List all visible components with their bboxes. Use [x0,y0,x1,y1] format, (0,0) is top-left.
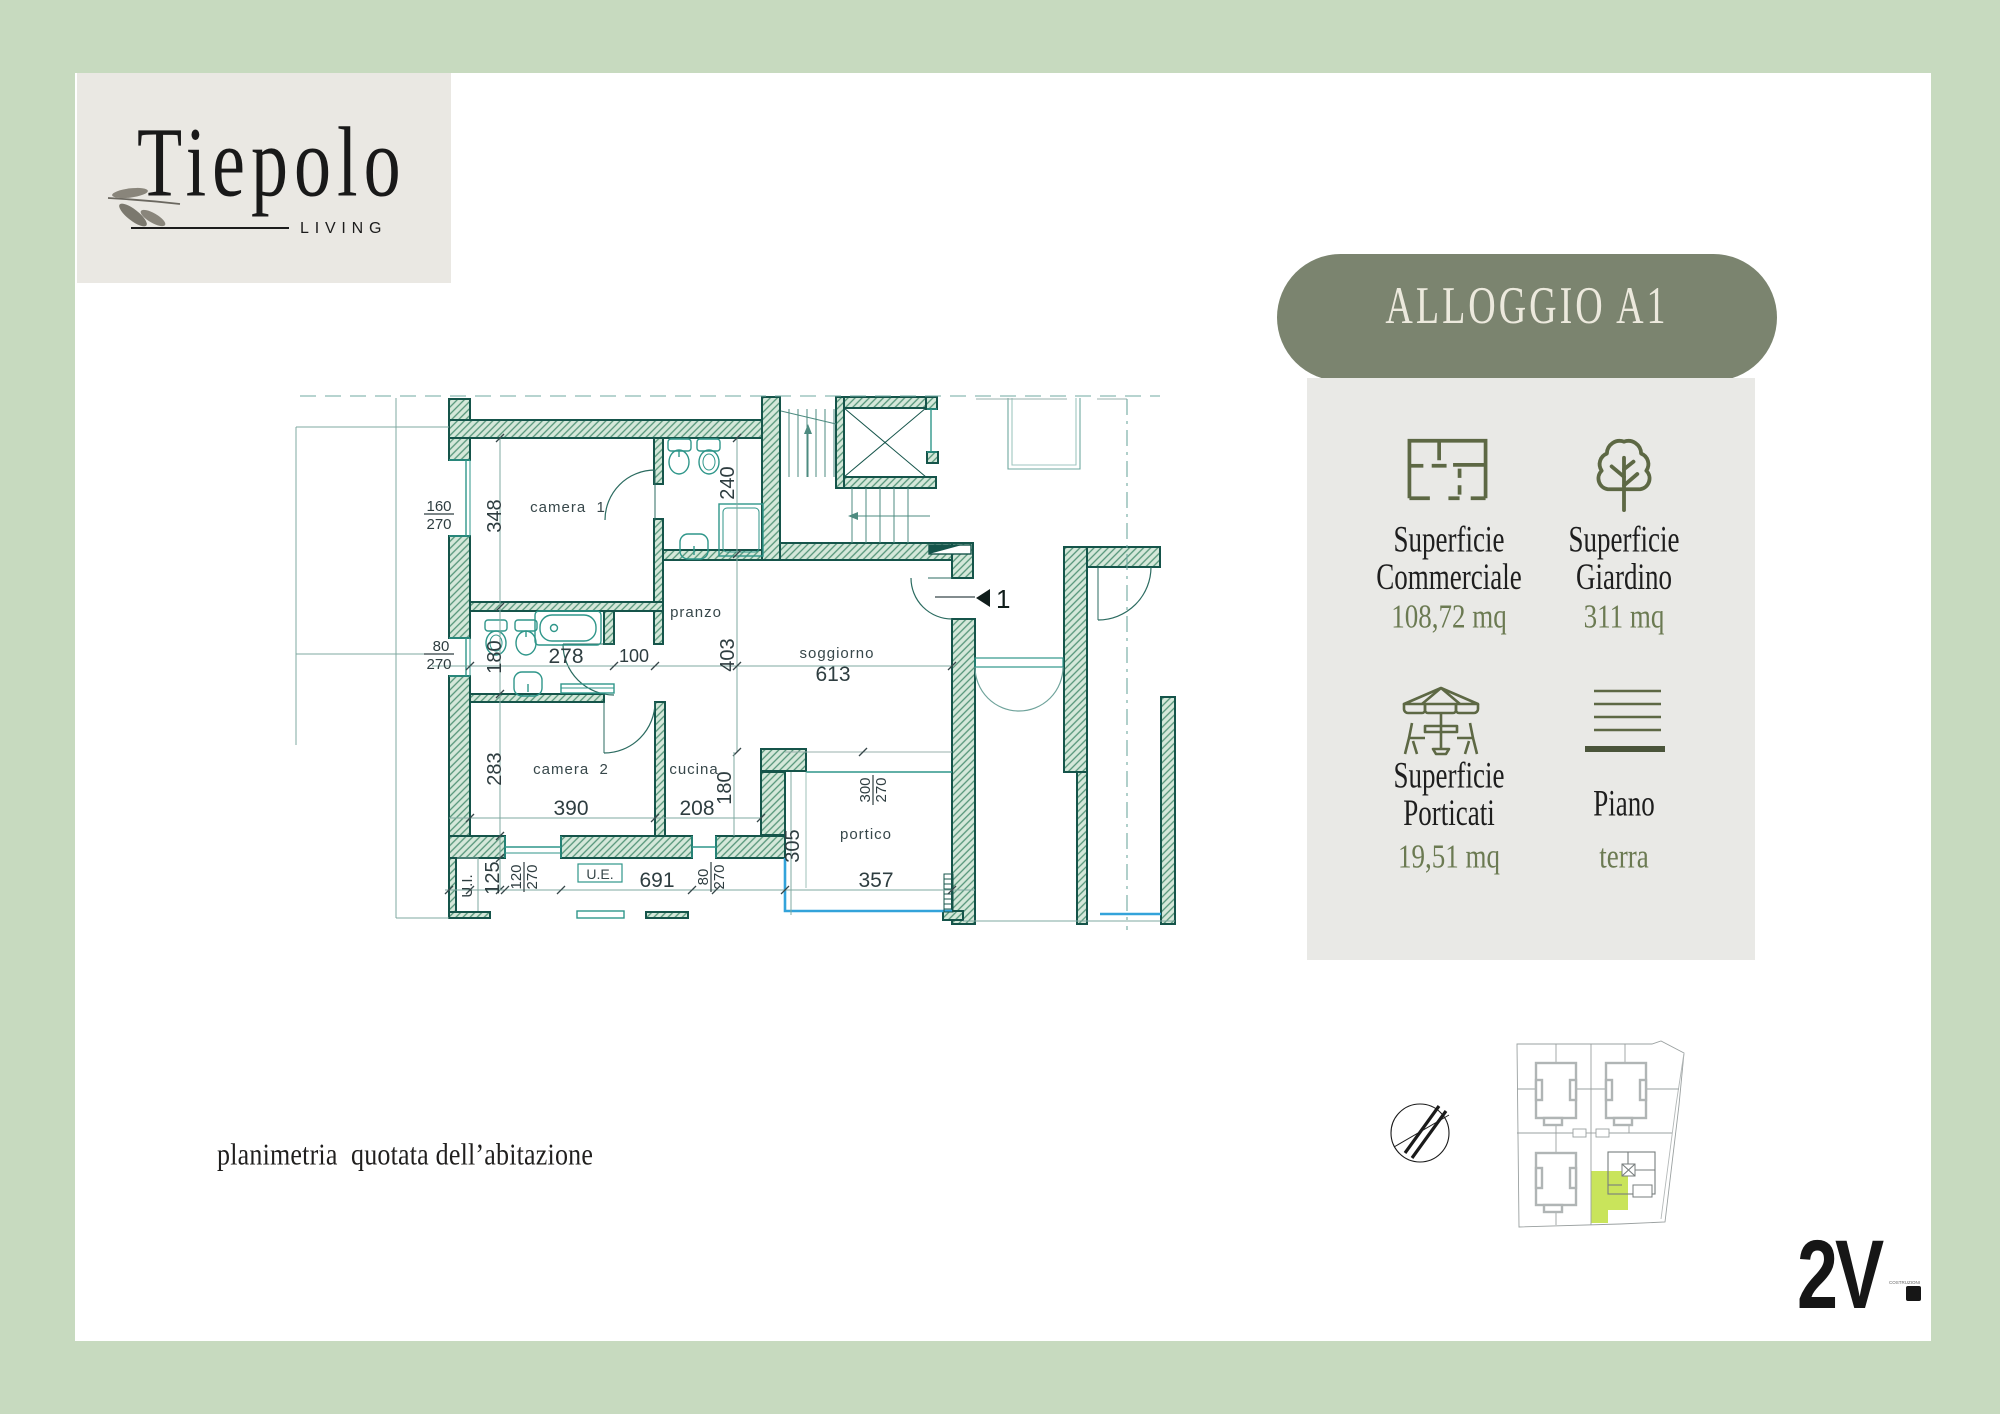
svg-text:278: 278 [548,645,583,668]
svg-text:camera 2: camera 2 [533,761,609,778]
svg-text:691: 691 [639,869,674,892]
svg-text:208: 208 [679,797,714,820]
svg-text:270: 270 [873,777,890,802]
svg-text:180: 180 [484,640,506,673]
svg-text:U.E.: U.E. [586,866,613,882]
svg-text:348: 348 [484,499,506,532]
svg-text:270: 270 [426,516,451,533]
svg-text:160: 160 [426,498,451,515]
svg-text:cucina: cucina [669,761,718,778]
svg-text:300: 300 [857,777,874,802]
svg-text:240: 240 [717,466,739,499]
svg-text:270: 270 [426,656,451,673]
svg-text:283: 283 [484,752,506,785]
svg-text:180: 180 [714,771,736,804]
svg-text:80: 80 [695,869,712,886]
svg-text:305: 305 [782,829,804,862]
svg-text:120: 120 [508,864,525,889]
svg-text:U.I.: U.I. [459,874,476,897]
svg-text:1: 1 [996,584,1010,614]
svg-text:403: 403 [717,638,739,671]
svg-text:125: 125 [482,861,504,894]
svg-text:270: 270 [524,864,541,889]
svg-text:camera 1: camera 1 [530,499,606,516]
svg-text:pranzo: pranzo [670,604,722,621]
svg-text:80: 80 [433,638,450,655]
svg-text:100: 100 [619,646,649,666]
svg-text:613: 613 [815,663,850,686]
svg-text:portico: portico [840,826,892,843]
svg-text:soggiorno: soggiorno [800,645,875,662]
svg-text:390: 390 [553,797,588,820]
svg-text:357: 357 [858,869,893,892]
svg-text:270: 270 [711,864,728,889]
